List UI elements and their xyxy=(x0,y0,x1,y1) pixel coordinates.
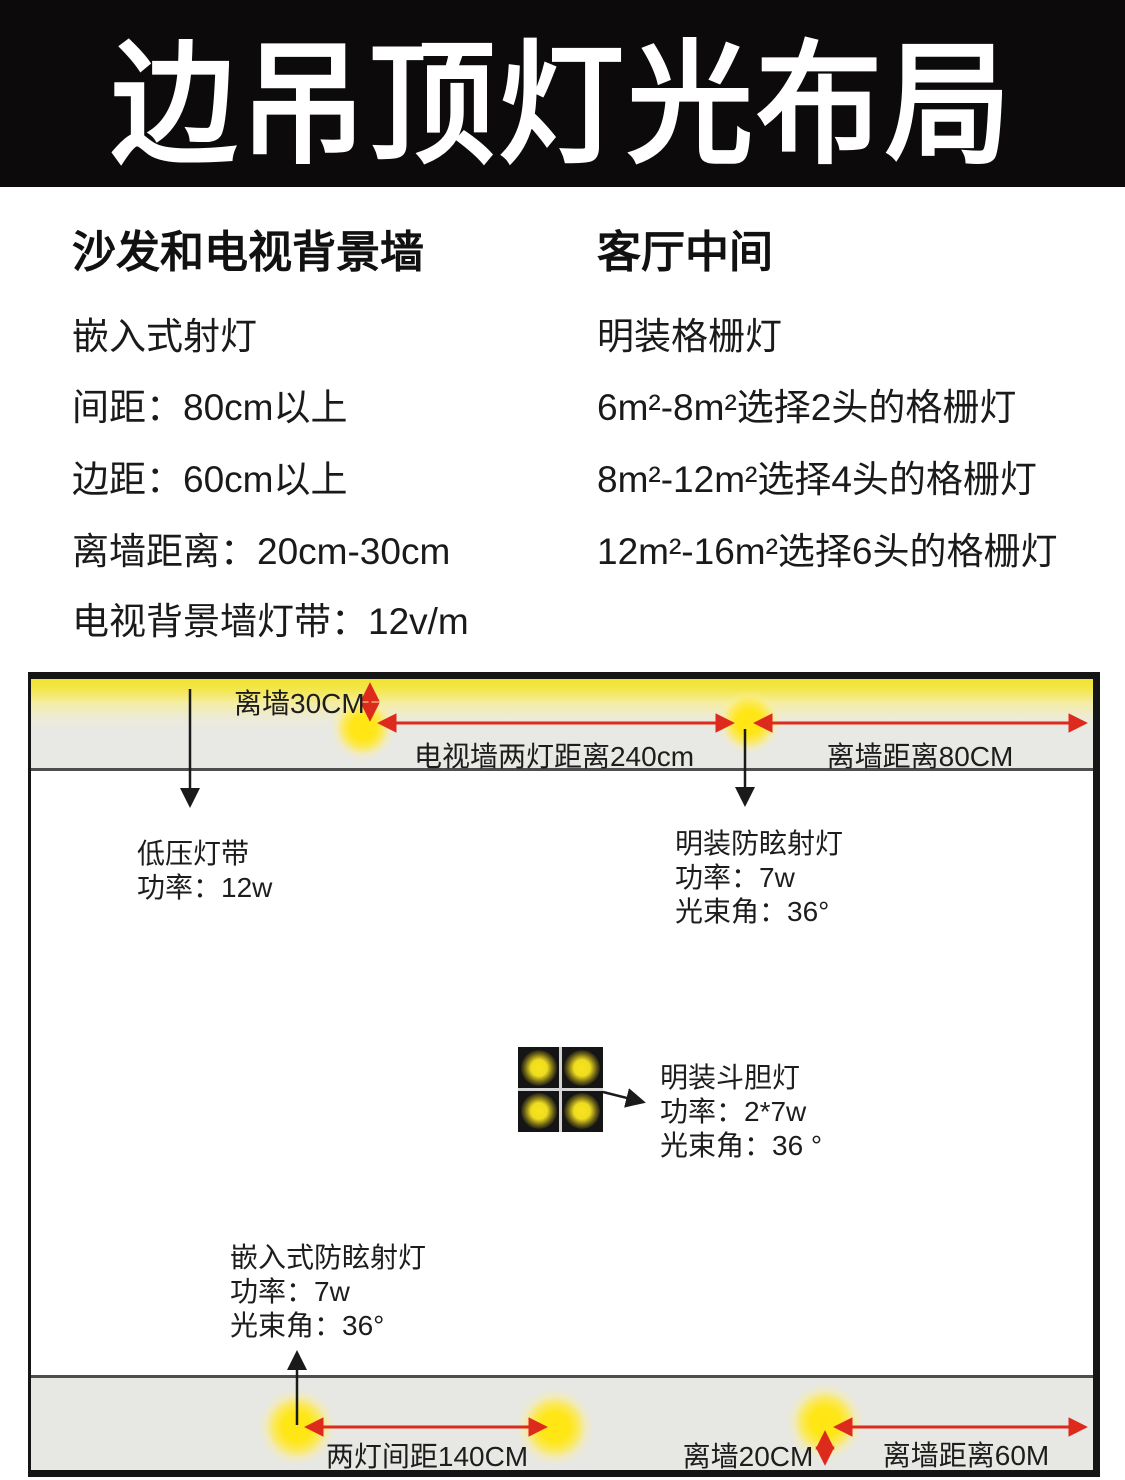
left-column-heading: 沙发和电视背景墙 xyxy=(72,216,424,280)
fixture-lamp-dot xyxy=(521,1093,557,1129)
spotlight-glow xyxy=(517,1389,593,1465)
annotation-line: 功率：12w xyxy=(137,871,272,905)
page-title: 边吊顶灯光布局 xyxy=(111,0,1014,190)
annotation-line: 低压灯带 xyxy=(137,837,272,871)
dimension-label-wall-offset-20cm: 离墙20CM xyxy=(683,1435,814,1470)
annotation-double-head-light: 明装斗胆灯 功率：2*7w 光束角：36 ° xyxy=(660,1061,822,1163)
left-column-line: 间距：80cm以上 xyxy=(72,377,347,431)
annotation-line: 明装斗胆灯 xyxy=(660,1061,822,1095)
right-column-line: 明装格栅灯 xyxy=(597,306,782,360)
annotation-line: 光束角：36° xyxy=(230,1309,426,1343)
left-column-line: 离墙距离：20cm-30cm xyxy=(72,521,450,575)
fixture-lamp-dot xyxy=(521,1050,557,1086)
annotation-line: 功率：7w xyxy=(230,1275,426,1309)
fixture-lamp-dot xyxy=(564,1093,600,1129)
annotation-line: 光束角：36° xyxy=(675,895,843,929)
left-column-line: 边距：60cm以上 xyxy=(72,449,347,503)
dimension-label-wall-distance-80cm: 离墙距离80CM xyxy=(827,735,1014,775)
spotlight-glow xyxy=(717,690,781,754)
callout-arrow-double-head-light xyxy=(603,1092,643,1102)
annotation-line: 功率：2*7w xyxy=(660,1095,822,1129)
annotation-line: 光束角：36 ° xyxy=(660,1129,822,1163)
fixture-divider xyxy=(559,1047,562,1132)
spotlight-glow xyxy=(259,1389,335,1465)
annotation-recessed-spotlight: 嵌入式防眩射灯 功率：7w 光束角：36° xyxy=(230,1241,426,1343)
fixture-lamp-dot xyxy=(564,1050,600,1086)
ceiling-plan-diagram: 离墙30CM 电视墙两灯距离240cm 离墙距离80CM 两灯间距140CM 离… xyxy=(28,672,1100,1477)
annotation-line: 明装防眩射灯 xyxy=(675,827,843,861)
annotation-surface-spotlight: 明装防眩射灯 功率：7w 光束角：36° xyxy=(675,827,843,929)
right-column-line: 6m²-8m²选择2头的格栅灯 xyxy=(597,377,1016,431)
right-column-heading: 客厅中间 xyxy=(597,216,773,280)
left-column-line: 嵌入式射灯 xyxy=(72,306,257,360)
annotation-line: 嵌入式防眩射灯 xyxy=(230,1241,426,1275)
annotation-led-strip: 低压灯带 功率：12w xyxy=(137,837,272,905)
dimension-label-tv-wall-spacing-240cm: 电视墙两灯距离240cm xyxy=(414,735,694,775)
diagram-canvas: 离墙30CM 电视墙两灯距离240cm 离墙距离80CM 两灯间距140CM 离… xyxy=(31,679,1093,1470)
dimension-label-spacing-140cm: 两灯间距140CM xyxy=(326,1435,528,1470)
dimension-label-wall-offset-30cm: 离墙30CM xyxy=(234,682,365,722)
dimension-label-wall-distance-60m: 离墙距离60M xyxy=(883,1434,1049,1470)
header-banner: 边吊顶灯光布局 xyxy=(0,0,1125,187)
right-column-line: 12m²-16m²选择6头的格栅灯 xyxy=(597,521,1058,575)
right-column-line: 8m²-12m²选择4头的格栅灯 xyxy=(597,449,1037,503)
left-column-line: 电视背景墙灯带：12v/m xyxy=(72,591,469,645)
grille-light-fixture xyxy=(518,1047,603,1132)
annotation-line: 功率：7w xyxy=(675,861,843,895)
